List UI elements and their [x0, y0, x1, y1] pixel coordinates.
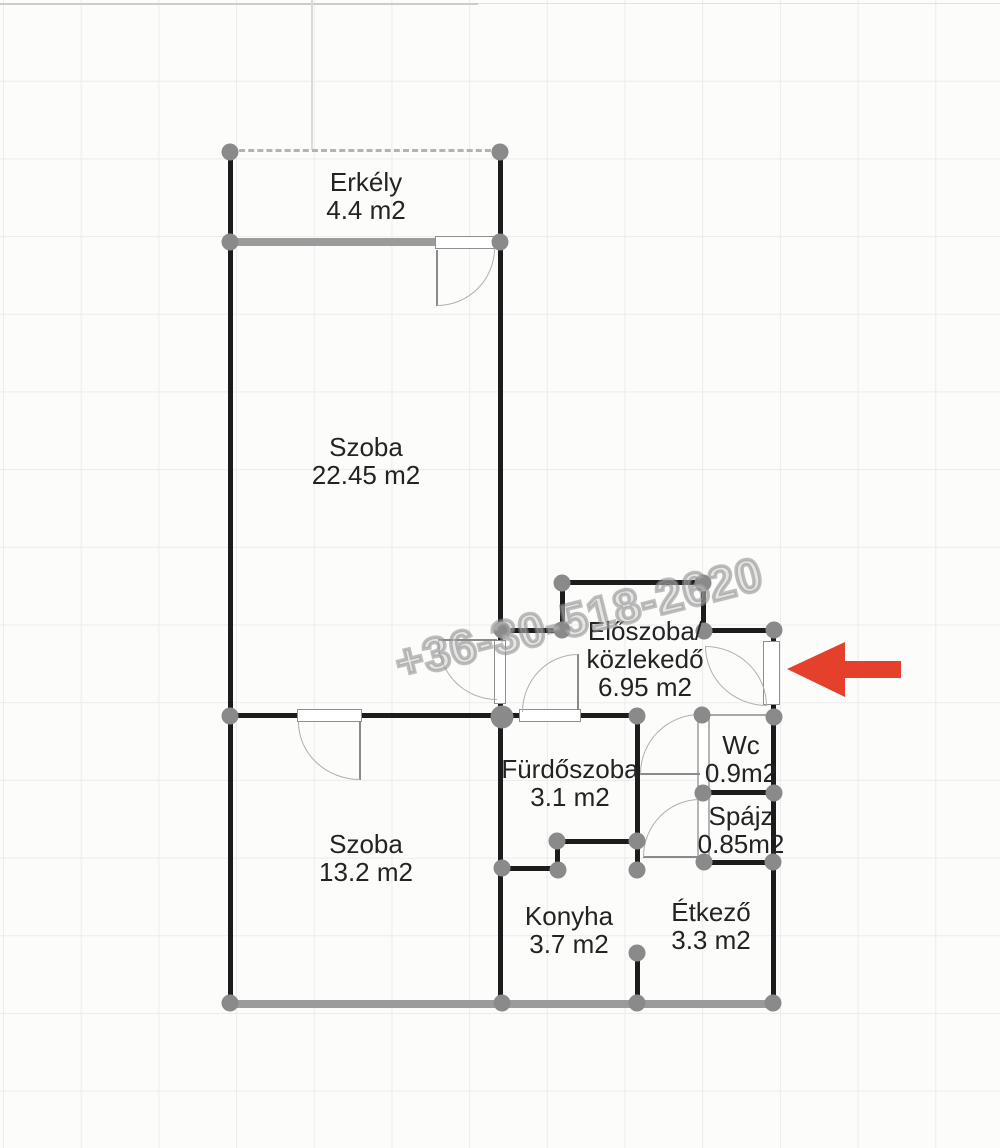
- top-vertical-line: [311, 0, 313, 150]
- wall-node: [629, 862, 646, 879]
- entrance-door-swing: [705, 646, 767, 706]
- balcony-door-arc: [437, 248, 495, 306]
- room-name-line2: közlekedő: [586, 645, 703, 673]
- room-label-szoba-kis: Szoba 13.2 m2: [319, 830, 413, 886]
- wall-node: [629, 945, 646, 962]
- room-label-furdoszoba: Fürdőszoba 3.1 m2: [501, 755, 638, 811]
- wall-node: [629, 833, 646, 850]
- wall-node: [629, 995, 646, 1012]
- room-label-szoba-nagy: Szoba 22.45 m2: [312, 433, 420, 489]
- room-name: Konyha: [525, 902, 613, 930]
- wall-node: [494, 860, 511, 877]
- bathroom-door-arc: [522, 654, 578, 712]
- balcony-railing-dashed-line: [230, 149, 500, 152]
- floorplan-canvas: Erkély 4.4 m2 Szoba 22.45 m2 Előszoba/ k…: [0, 0, 1000, 1148]
- room-name: Erkély: [326, 168, 406, 196]
- room-label-wc: Wc 0.9m2: [705, 731, 777, 787]
- room-name: Spájz: [698, 802, 785, 830]
- room-name: Fürdőszoba: [501, 755, 638, 783]
- room-area: 6.95 m2: [586, 673, 703, 701]
- room-label-etkezo: Étkező 3.3 m2: [671, 898, 751, 954]
- top-edge-line: [0, 3, 478, 5]
- room-area: 3.3 m2: [671, 926, 751, 954]
- wall-node: [222, 995, 239, 1012]
- wall-node: [766, 709, 783, 726]
- room-name: Szoba: [319, 830, 413, 858]
- room-area: 0.9m2: [705, 759, 777, 787]
- smallroom-door-opening: [297, 709, 362, 722]
- wall-node: [494, 995, 511, 1012]
- center-vertical-wall: [498, 150, 503, 1007]
- room-label-spajz: Spájz 0.85m2: [698, 802, 785, 858]
- room-name: Wc: [705, 731, 777, 759]
- wall-node: [549, 833, 566, 850]
- room-label-erkely: Erkély 4.4 m2: [326, 168, 406, 224]
- room-name: Szoba: [312, 433, 420, 461]
- room-area: 3.1 m2: [501, 783, 638, 811]
- wall-node: [629, 708, 646, 725]
- smallroom-door-arc: [298, 722, 360, 780]
- wall-node: [550, 862, 567, 879]
- balcony-front-wall: [232, 238, 437, 246]
- wall-node: [694, 707, 711, 724]
- room-area: 13.2 m2: [319, 858, 413, 886]
- wall-node: [222, 234, 239, 251]
- room-area: 22.45 m2: [312, 461, 420, 489]
- wall-node: [766, 622, 783, 639]
- wall-node: [491, 706, 514, 729]
- room-area: 3.7 m2: [525, 930, 613, 958]
- wall-node: [554, 575, 571, 592]
- wc-door-arc: [640, 714, 700, 774]
- wall-node: [492, 234, 509, 251]
- room-name: Étkező: [671, 898, 751, 926]
- wc-top-thin-wall: [705, 714, 773, 716]
- entrance-arrow-icon: [785, 639, 905, 701]
- room-area: 0.85m2: [698, 830, 785, 858]
- wall-node: [222, 708, 239, 725]
- wall-node: [492, 144, 509, 161]
- wall-node: [765, 995, 782, 1012]
- top-edge-line-right: [478, 3, 1000, 4]
- spajz-door-arc: [643, 799, 700, 857]
- room-area: 4.4 m2: [326, 196, 406, 224]
- room-label-konyha: Konyha 3.7 m2: [525, 902, 613, 958]
- left-exterior-wall: [228, 150, 233, 1007]
- wall-node: [222, 144, 239, 161]
